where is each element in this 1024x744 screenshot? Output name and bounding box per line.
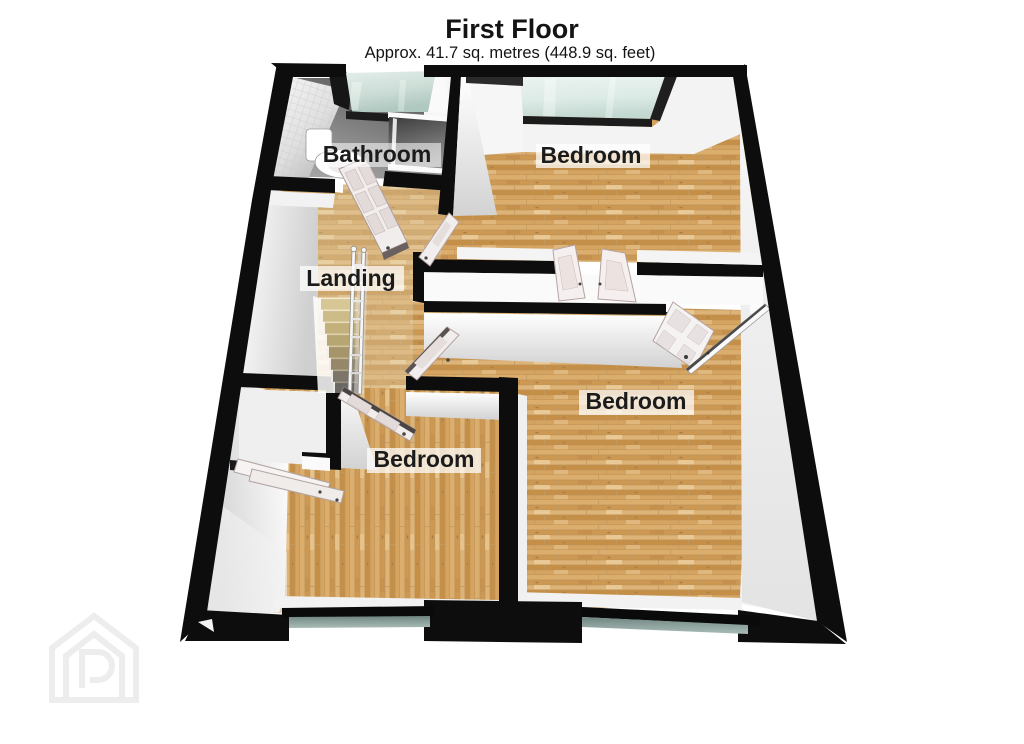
- svg-text:Bedroom: Bedroom: [541, 142, 642, 168]
- svg-text:Landing: Landing: [306, 265, 395, 291]
- svg-text:Bedroom: Bedroom: [374, 446, 475, 472]
- svg-text:Bathroom: Bathroom: [323, 141, 432, 167]
- svg-text:Approx. 41.7 sq. metres (448.9: Approx. 41.7 sq. metres (448.9 sq. feet): [365, 44, 656, 62]
- svg-text:First Floor: First Floor: [445, 14, 579, 44]
- svg-text:Bedroom: Bedroom: [586, 388, 687, 414]
